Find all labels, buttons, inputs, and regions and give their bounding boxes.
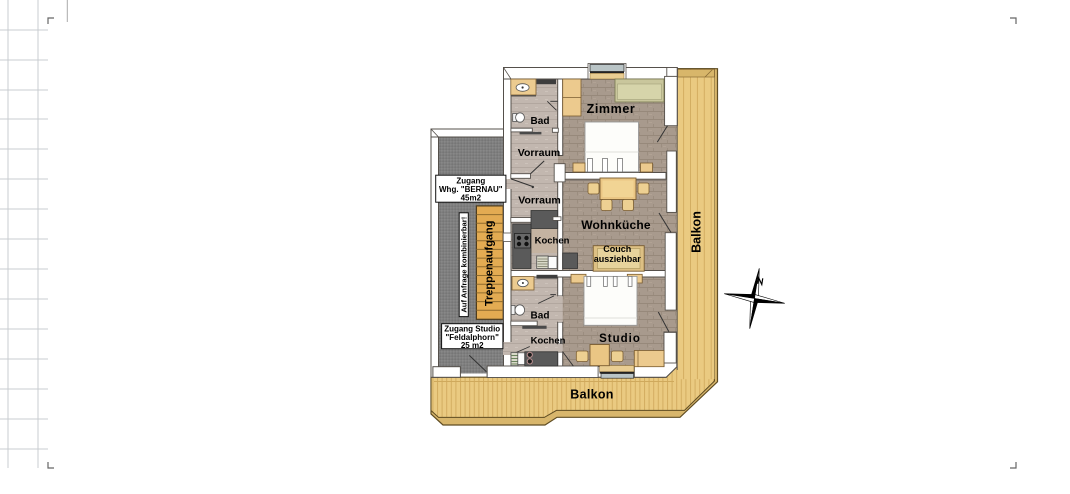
svg-text:Bad: Bad xyxy=(531,311,550,322)
svg-text:Couch: Couch xyxy=(603,244,631,254)
svg-text:Bad: Bad xyxy=(531,116,550,127)
svg-text:Zimmer: Zimmer xyxy=(587,102,636,116)
svg-text:Vorraum: Vorraum xyxy=(518,194,560,206)
svg-text:25 m2: 25 m2 xyxy=(461,341,484,350)
svg-text:Studio: Studio xyxy=(599,333,641,345)
svg-text:Balkon: Balkon xyxy=(690,211,704,253)
svg-text:Treppenaufgang: Treppenaufgang xyxy=(484,221,496,307)
svg-text:Kochen: Kochen xyxy=(531,336,566,347)
svg-text:Vorraum: Vorraum xyxy=(518,147,560,159)
svg-text:Auf Anfrage kombinierbar!: Auf Anfrage kombinierbar! xyxy=(459,217,468,313)
svg-text:Balkon: Balkon xyxy=(570,388,613,402)
svg-text:Wohnküche: Wohnküche xyxy=(581,218,651,232)
svg-text:45m2: 45m2 xyxy=(461,194,482,203)
svg-text:Kochen: Kochen xyxy=(535,236,570,247)
svg-text:ausziehbar: ausziehbar xyxy=(594,254,642,264)
